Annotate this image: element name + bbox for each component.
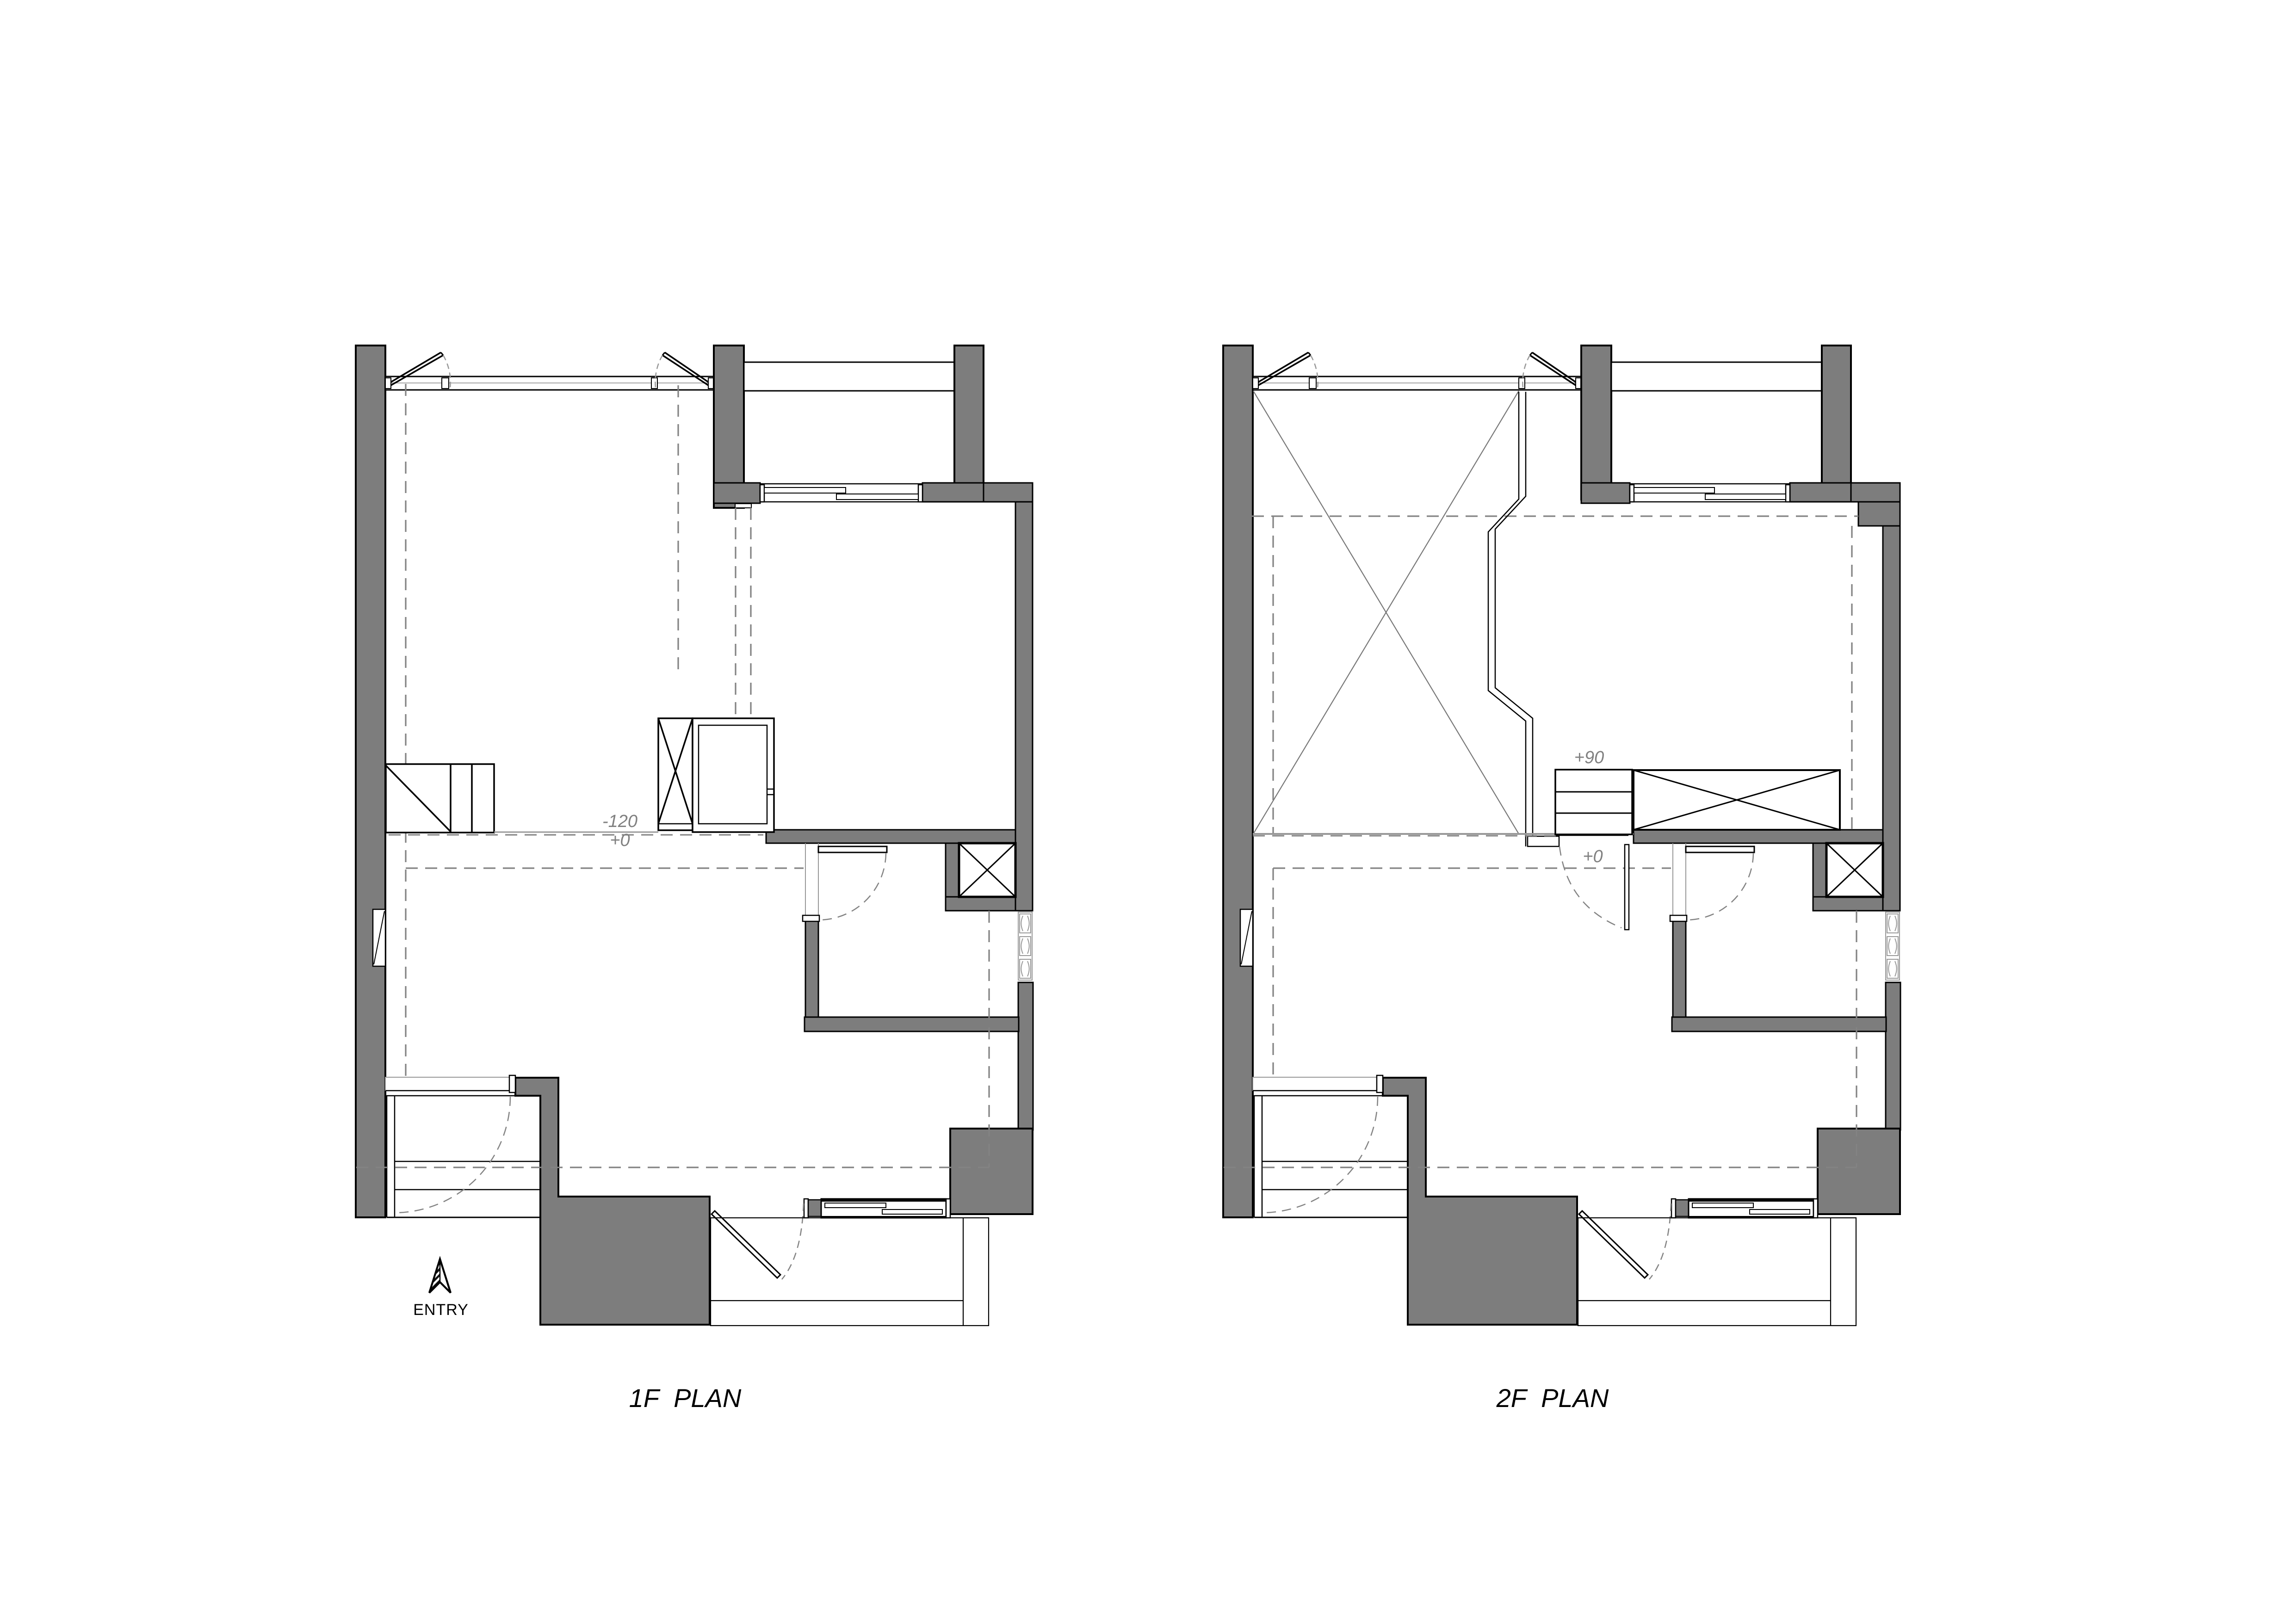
svg-text:-120: -120 — [602, 812, 637, 831]
svg-text:+90: +90 — [1574, 748, 1604, 767]
svg-text:1F PLAN: 1F PLAN — [629, 1383, 742, 1413]
svg-text:ENTRY: ENTRY — [413, 1301, 469, 1319]
svg-text:2F PLAN: 2F PLAN — [1496, 1383, 1609, 1413]
svg-text:+0: +0 — [610, 831, 630, 850]
svg-text:+0: +0 — [1583, 847, 1603, 866]
